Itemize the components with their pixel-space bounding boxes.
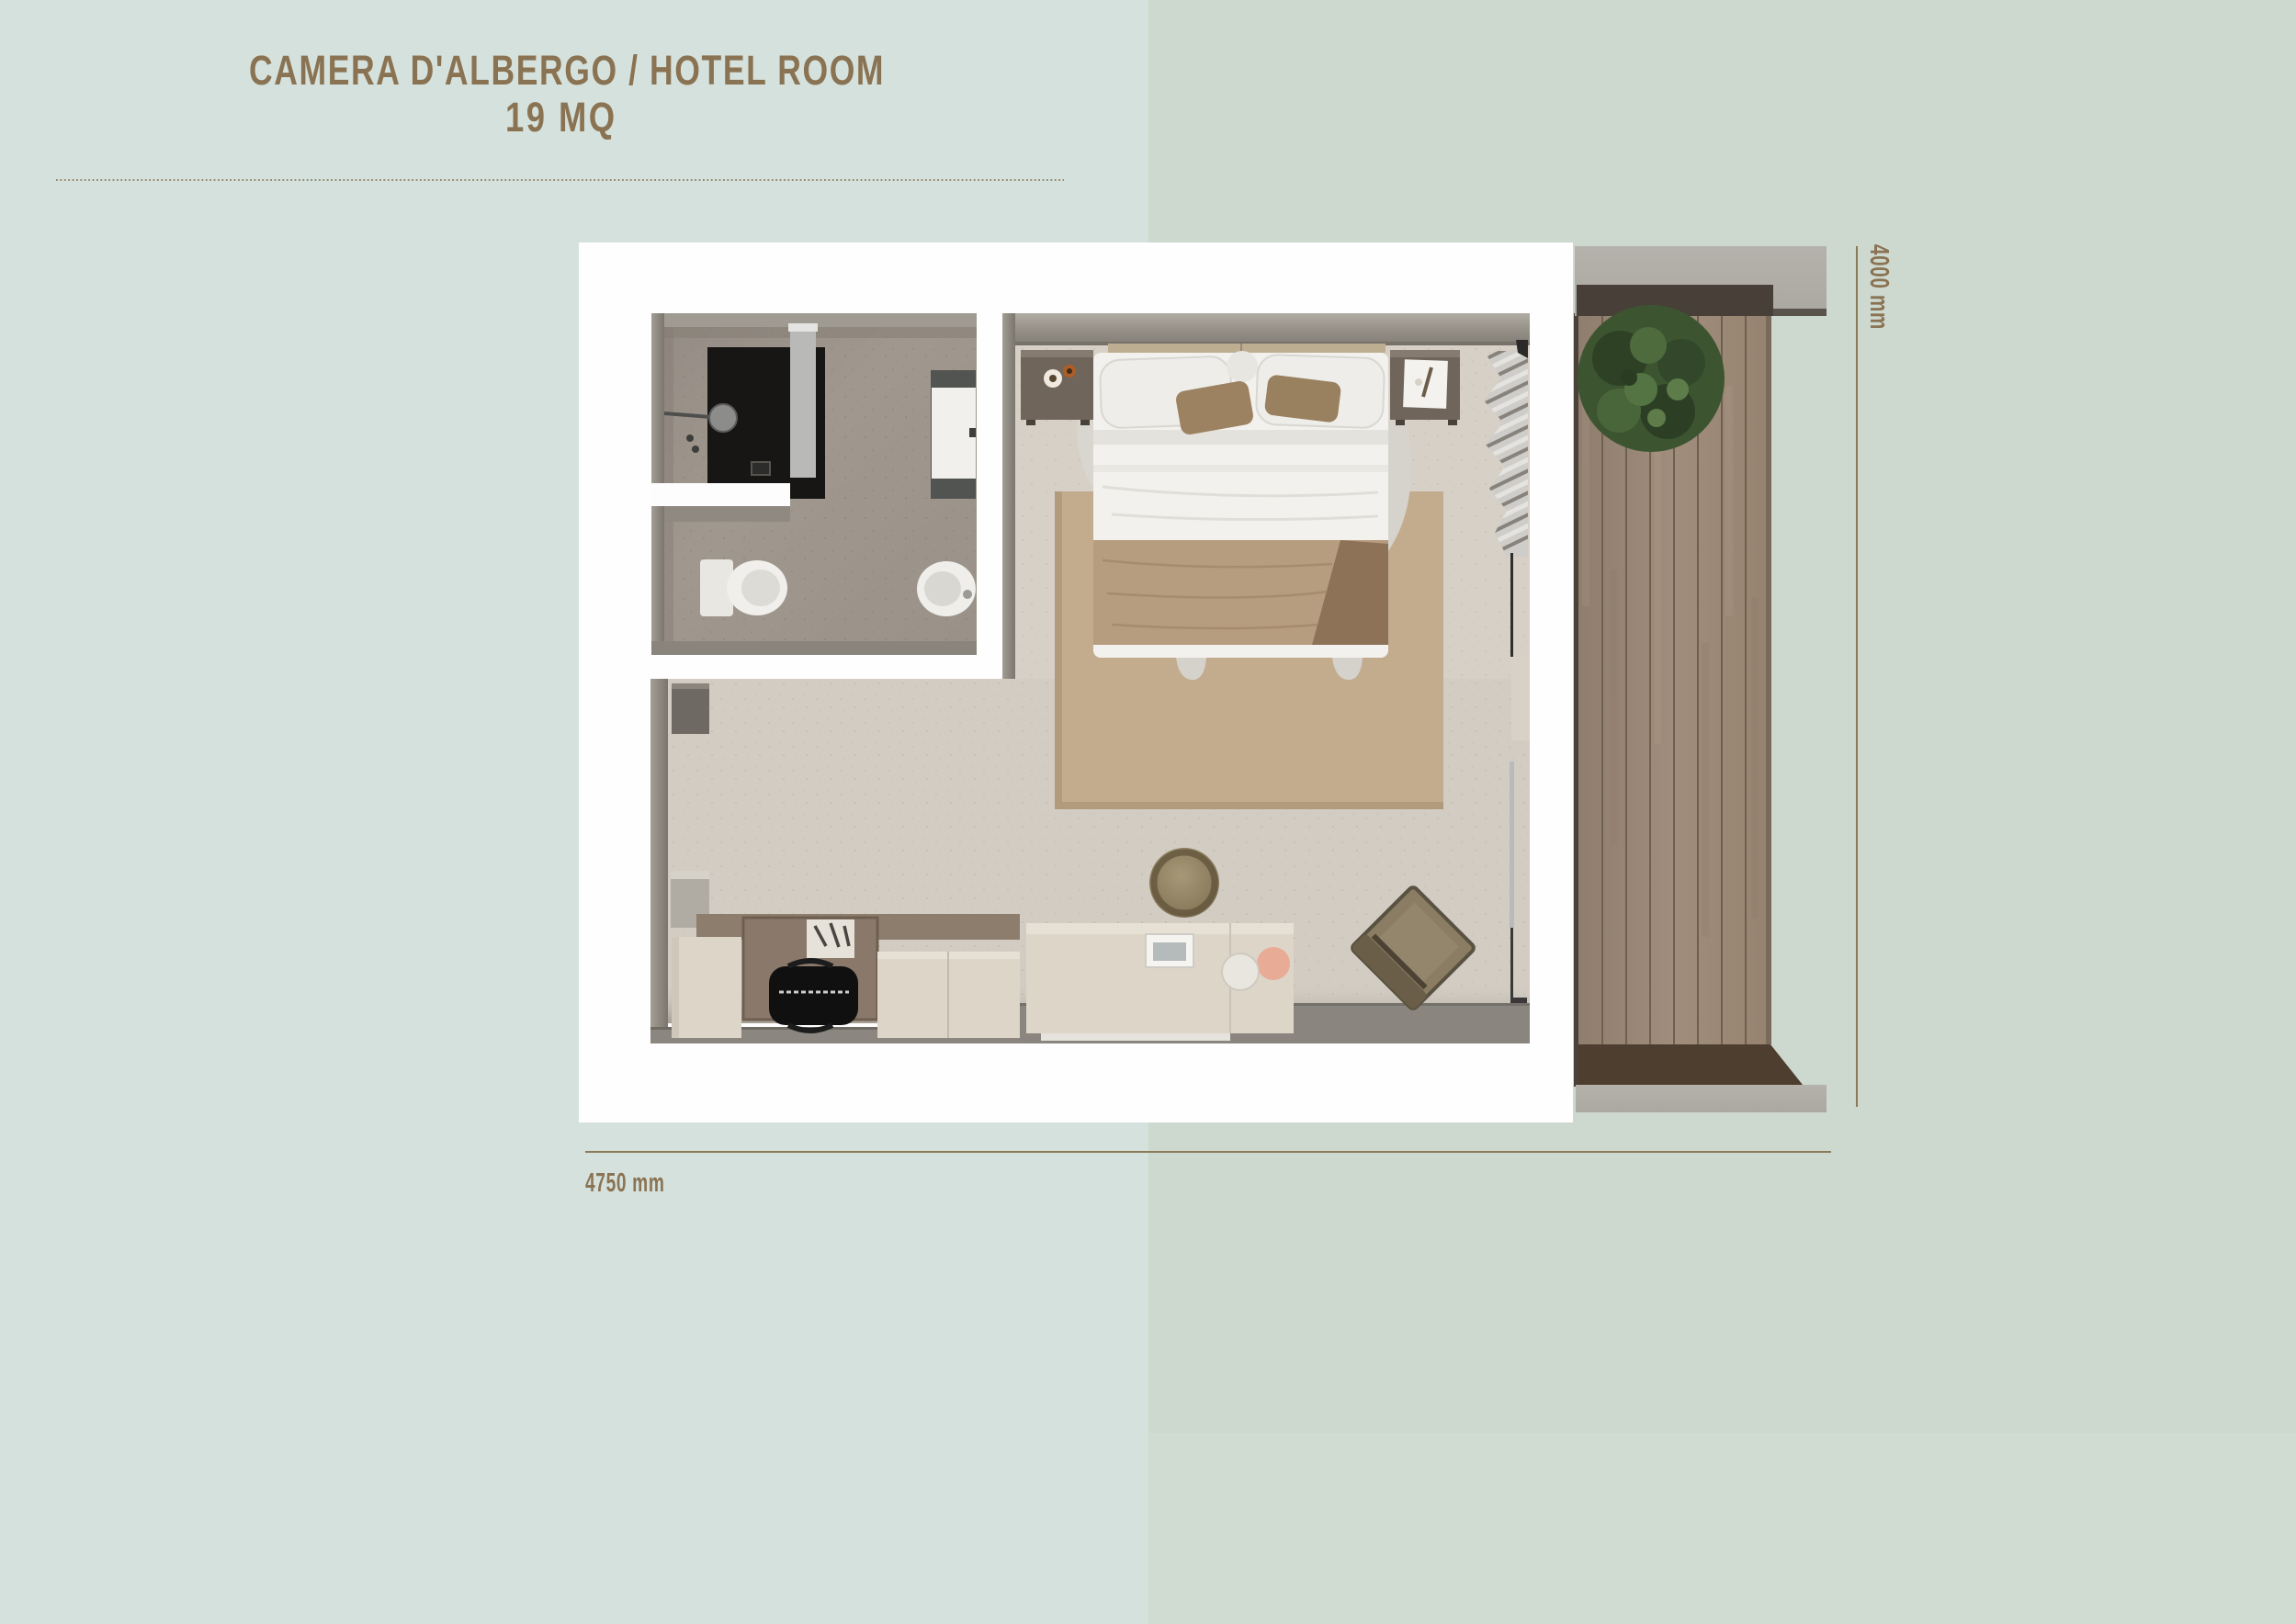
svg-text:19 MQ: 19 MQ	[505, 94, 617, 141]
svg-text:4000 mm: 4000 mm	[1864, 244, 1894, 330]
svg-text:CAMERA D'ALBERGO / HOTEL ROOM: CAMERA D'ALBERGO / HOTEL ROOM	[249, 47, 885, 94]
svg-text:4750 mm: 4750 mm	[585, 1168, 664, 1198]
